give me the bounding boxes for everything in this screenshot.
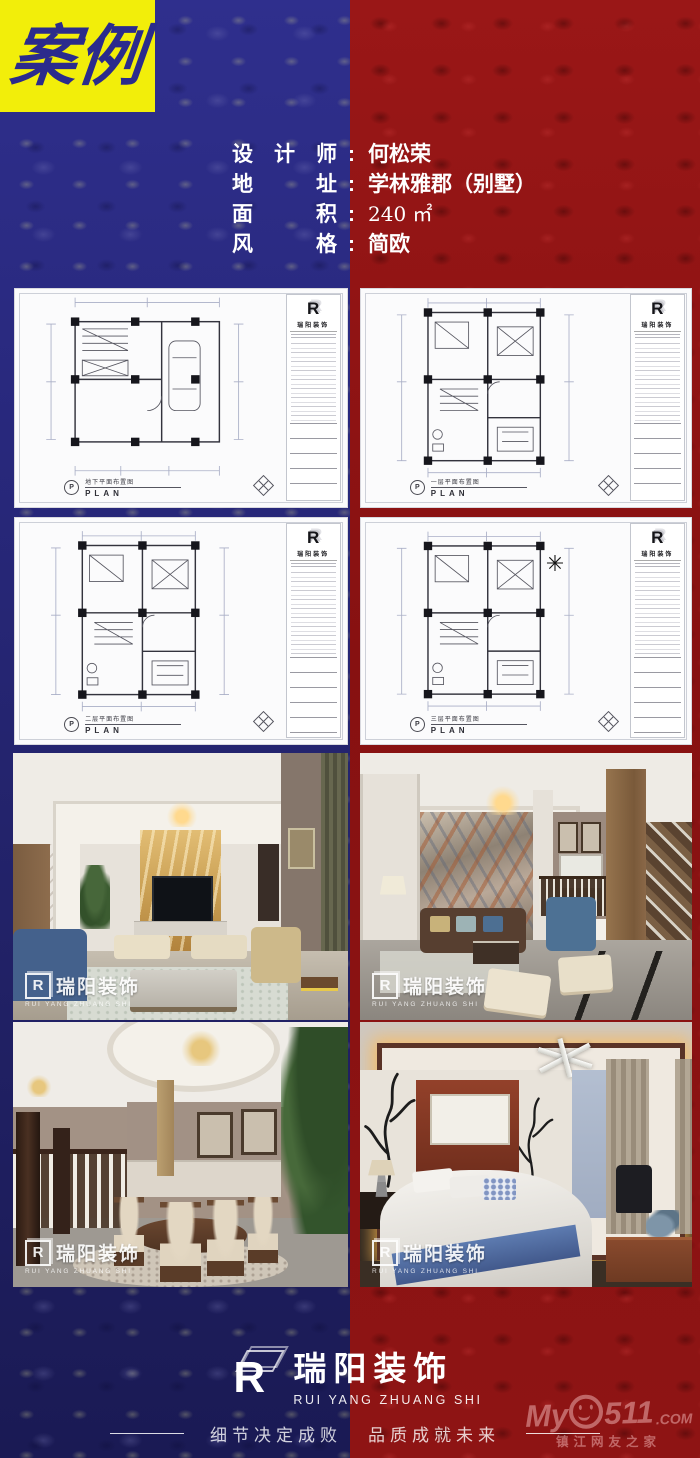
ruiyang-logo-icon: R <box>290 300 337 317</box>
titleblock-fields <box>634 423 681 497</box>
brand-text: 瑞阳装饰 RUI YANG ZHUANG SHI <box>293 1342 482 1407</box>
titleblock-company: 瑞阳装饰 <box>634 549 681 561</box>
ruiyang-logo-icon: R <box>25 1240 51 1266</box>
smiley-mouth <box>578 1412 590 1421</box>
titleblock-fields <box>290 657 337 733</box>
titleblock: R 瑞阳装饰 <box>286 523 341 737</box>
watermark-cn: 瑞阳装饰 <box>403 972 487 999</box>
dining-chair <box>207 1200 244 1277</box>
info-label: 设 计 师 <box>232 138 350 168</box>
plan-marker: P <box>410 480 425 495</box>
pillow <box>456 916 476 932</box>
info-value-address: 学林雅郡（别墅） <box>368 168 536 198</box>
slogan-left: 细节决定成败 <box>210 1421 342 1446</box>
titleblock-text-bar <box>635 563 680 568</box>
titleblock-fields <box>634 657 681 733</box>
ruiyang-logo-icon: R <box>372 1240 398 1266</box>
plan-caption-text: 二层平面布置图 PLAN <box>85 714 181 735</box>
brand-name-en: RUI YANG ZHUANG SHI <box>293 1393 482 1407</box>
ottoman <box>191 935 248 959</box>
plan-title-en: PLAN <box>85 726 181 735</box>
titleblock-fields <box>290 423 337 497</box>
titleblock-notes <box>291 343 336 421</box>
wall-painting <box>288 828 315 869</box>
plan-title-en: PLAN <box>431 726 527 735</box>
wood-pillar <box>157 1080 174 1175</box>
titleblock-text-bar <box>291 334 336 339</box>
plan-caption-text: 三层平面布置图 PLAN <box>431 714 527 735</box>
ink-branch-art <box>360 1064 420 1197</box>
sculpture <box>646 1210 679 1237</box>
info-colon: : <box>348 143 355 167</box>
info-colon: : <box>348 203 355 227</box>
television <box>152 876 213 923</box>
project-info: 设 计 师: 何松荣 地 址: 学林雅郡（别墅） 面 积: 240 ㎡ 风 格:… <box>232 138 536 258</box>
photo-watermark: R 瑞阳装饰 RUI YANG ZHUANG SHI <box>372 1239 487 1275</box>
armchair <box>616 1165 653 1213</box>
floorplan-drawing <box>27 292 267 481</box>
info-colon: : <box>348 233 355 257</box>
render-living-room-2: R 瑞阳装饰 RUI YANG ZHUANG SHI <box>360 753 692 1020</box>
render-bedroom: R 瑞阳装饰 RUI YANG ZHUANG SHI <box>360 1022 692 1287</box>
brand-lockup: R 瑞阳装饰 RUI YANG ZHUANG SHI <box>233 1342 482 1407</box>
divider-line <box>110 1433 184 1434</box>
watermark-en: RUI YANG ZHUANG SHI <box>25 1001 140 1008</box>
floorplan-basement: R 瑞阳装饰 P 地下平面布置图 PLAN <box>14 288 348 508</box>
plan-caption: P 地下平面布置图 PLAN <box>64 477 181 498</box>
photo-watermark: R 瑞阳装饰 RUI YANG ZHUANG SHI <box>372 972 487 1008</box>
wall-painting <box>558 822 579 853</box>
site-digits: 511 <box>604 1396 654 1429</box>
titleblock-text-bar <box>291 563 336 568</box>
titleblock-text-bar <box>635 334 680 339</box>
side-table <box>301 977 338 990</box>
chandelier-icon <box>167 801 197 827</box>
wall-painting <box>430 1094 510 1146</box>
plan-caption: P 一层平面布置图 PLAN <box>410 477 527 498</box>
case-badge-text: 案例 <box>7 23 148 89</box>
window <box>572 1070 605 1218</box>
ottoman <box>558 954 613 992</box>
coffee-table <box>473 941 519 964</box>
floorplan-third-floor: ✳ R 瑞阳装饰 P 三层平面布置图 PLAN <box>360 517 692 745</box>
curtain <box>321 753 348 951</box>
caption-rule <box>85 487 181 488</box>
door <box>258 844 280 921</box>
curtain <box>675 1059 692 1234</box>
titleblock: R 瑞阳装饰 <box>630 523 685 737</box>
chandelier-icon <box>181 1030 221 1066</box>
dining-chair <box>248 1197 278 1263</box>
plan-caption-text: 地下平面布置图 PLAN <box>85 477 181 498</box>
info-label: 风 格 <box>232 228 350 258</box>
info-row-style: 风 格: 简欧 <box>232 228 536 258</box>
tv-cabinet <box>134 921 228 935</box>
wall-painting <box>241 1109 277 1155</box>
armchair <box>251 927 301 983</box>
poster: 案例 设 计 师: 何松荣 地 址: 学林雅郡（别墅） 面 积: 240 ㎡ 风… <box>0 0 700 1458</box>
blue-armchair <box>546 897 596 950</box>
titleblock-notes <box>635 343 680 421</box>
ottoman <box>114 935 171 959</box>
coffee-table <box>130 970 237 1012</box>
photo-watermark: R 瑞阳装饰 RUI YANG ZHUANG SHI <box>25 972 140 1008</box>
pillow <box>430 916 450 932</box>
site-logo: My 511 .COM <box>524 1391 692 1432</box>
info-value-style: 简欧 <box>368 228 410 258</box>
chandelier-icon <box>486 785 520 815</box>
my0511-watermark: My 511 .COM 镇江网友之家 <box>525 1394 692 1450</box>
watermark-cn: 瑞阳装饰 <box>403 1239 487 1266</box>
titleblock: R 瑞阳装饰 <box>630 294 685 501</box>
info-label: 面 积 <box>232 198 350 228</box>
info-label: 地 址 <box>232 168 350 198</box>
smiley-eye <box>579 1405 582 1410</box>
blue-floral-pillow <box>483 1178 516 1199</box>
plan-title-en: PLAN <box>431 489 527 498</box>
titleblock-notes <box>635 572 680 655</box>
plan-title-cn: 地下平面布置图 <box>85 477 181 486</box>
site-tld: .COM <box>655 1411 692 1427</box>
wood-pillar <box>606 769 646 961</box>
chandelier-icon <box>26 1075 52 1097</box>
smiley-icon <box>568 1394 603 1429</box>
plan-caption: P 二层平面布置图 PLAN <box>64 714 181 735</box>
floorplan-second-floor: R 瑞阳装饰 P 二层平面布置图 PLAN <box>14 517 348 745</box>
render-living-room-1: R 瑞阳装饰 RUI YANG ZHUANG SHI <box>13 753 348 1020</box>
ruiyang-logo-icon: R <box>233 1350 281 1400</box>
ruiyang-logo-icon: R <box>634 300 681 317</box>
info-value-designer: 何松荣 <box>368 138 431 168</box>
desk <box>606 1237 692 1282</box>
ruiyang-logo-icon: R <box>25 973 51 999</box>
watermark-en: RUI YANG ZHUANG SHI <box>25 1268 140 1275</box>
titleblock-company: 瑞阳装饰 <box>634 320 681 332</box>
brand-name-cn: 瑞阳装饰 <box>293 1342 482 1390</box>
plant <box>281 1027 348 1234</box>
plan-title-cn: 一层平面布置图 <box>431 477 527 486</box>
floorplan-drawing <box>27 522 267 718</box>
titleblock-notes <box>291 572 336 655</box>
site-prefix: My <box>525 1399 569 1431</box>
plan-marker: P <box>64 480 79 495</box>
titleblock: R 瑞阳装饰 <box>286 294 341 501</box>
info-value-area: 240 ㎡ <box>368 198 433 227</box>
ruiyang-logo-icon: R <box>634 529 681 546</box>
floorplan-first-floor: R 瑞阳装饰 P 一层平面布置图 PLAN <box>360 288 692 508</box>
logo-letter: R <box>233 1356 265 1400</box>
plan-caption-text: 一层平面布置图 PLAN <box>431 477 527 498</box>
caption-rule <box>431 487 527 488</box>
smiley-eye <box>590 1405 593 1410</box>
plan-marker: P <box>64 717 79 732</box>
site-subtitle: 镇江网友之家 <box>525 1431 692 1450</box>
floor-lamp <box>380 876 407 895</box>
wall-painting <box>197 1112 233 1158</box>
info-row-area: 面 积: 240 ㎡ <box>232 198 536 228</box>
plan-title-cn: 三层平面布置图 <box>431 714 527 723</box>
watermark-cn: 瑞阳装饰 <box>56 1239 140 1266</box>
plant <box>80 865 110 929</box>
plan-title-cn: 二层平面布置图 <box>85 714 181 723</box>
case-badge: 案例 <box>0 0 155 112</box>
wainscot <box>127 1160 281 1197</box>
pillow <box>483 916 503 932</box>
caption-rule <box>431 724 527 725</box>
wall-painting <box>581 822 602 853</box>
render-dining-room: R 瑞阳装饰 RUI YANG ZHUANG SHI <box>13 1022 348 1287</box>
wall-paneling <box>360 774 420 950</box>
watermark-cn: 瑞阳装饰 <box>56 972 140 999</box>
plan-caption: P 三层平面布置图 PLAN <box>410 714 527 735</box>
ceiling-fan-symbol: ✳ <box>546 553 564 575</box>
ottoman <box>484 968 552 1016</box>
watermark-en: RUI YANG ZHUANG SHI <box>372 1001 487 1008</box>
ruiyang-logo-icon: R <box>372 973 398 999</box>
floorplan-drawing <box>373 292 612 481</box>
ruiyang-logo-icon: R <box>290 529 337 546</box>
titleblock-company: 瑞阳装饰 <box>290 549 337 561</box>
info-colon: : <box>348 173 355 197</box>
dining-chair <box>160 1202 200 1282</box>
watermark-en: RUI YANG ZHUANG SHI <box>372 1268 487 1275</box>
floorplan-drawing <box>373 522 612 718</box>
plan-marker: P <box>410 717 425 732</box>
photo-watermark: R 瑞阳装饰 RUI YANG ZHUANG SHI <box>25 1239 140 1275</box>
info-row-address: 地 址: 学林雅郡（别墅） <box>232 168 536 198</box>
slogan-right: 品质成就未来 <box>368 1421 500 1446</box>
newel-post <box>53 1128 70 1234</box>
titleblock-company: 瑞阳装饰 <box>290 320 337 332</box>
info-row-designer: 设 计 师: 何松荣 <box>232 138 536 168</box>
plan-title-en: PLAN <box>85 489 181 498</box>
caption-rule <box>85 724 181 725</box>
